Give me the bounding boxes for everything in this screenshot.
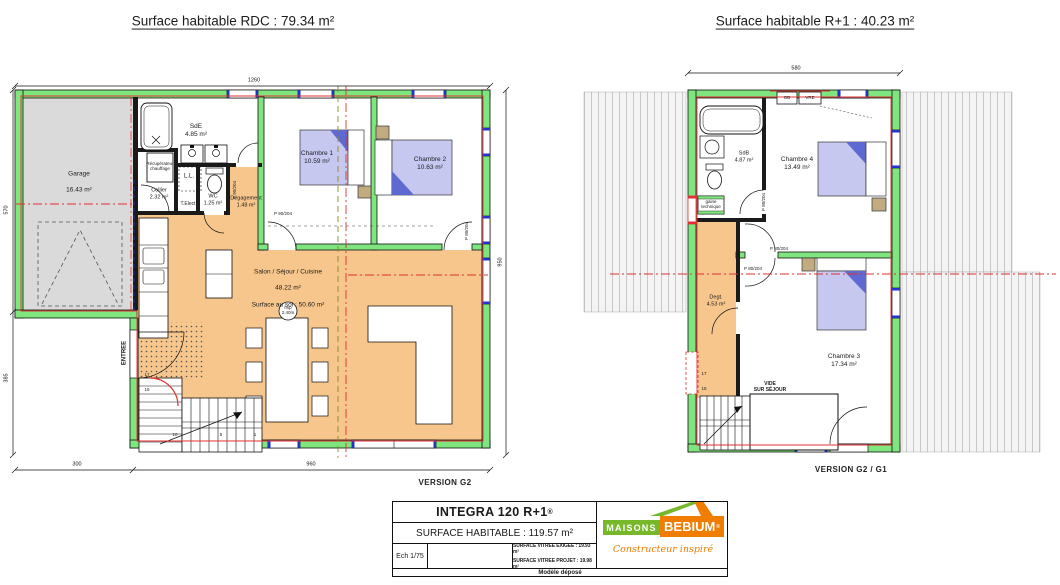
heat-recovery-label: Récupérateur chauffage [146, 162, 173, 172]
door-tag-p90-2: P 90/204 [232, 181, 238, 199]
r1-furniture [802, 142, 886, 330]
technical-duct-label: gaine technique [701, 200, 721, 210]
rdc-title: Surface habitable RDC : 79.34 m² [132, 14, 335, 31]
wc-tank [206, 168, 223, 174]
model-text: INTEGRA 120 R+1 [436, 505, 547, 519]
dim-top-rdc: 1260 [248, 78, 260, 85]
room-label-chambre1: Chambre 110.59 m² [301, 142, 333, 175]
door-tag-r1-c: P 80/204 [761, 193, 767, 211]
r1-stair-step-17: 17 [701, 371, 706, 377]
room-label-chambre2: Chambre 210.63 m² [414, 148, 446, 181]
vide-sur-sejour-opening [750, 394, 838, 450]
door-tag-p80: P 80/204 [464, 222, 470, 240]
logo-bebium: BEBIUM® [660, 516, 724, 537]
dim-top-r1: 580 [791, 66, 800, 73]
room-label-chambre4: Chambre 413.49 m² [781, 148, 813, 181]
title-block-left: INTEGRA 120 R+1® SURFACE HABITABLE : 119… [393, 502, 597, 568]
vre-label: VRE [805, 95, 814, 101]
room-label-sde: SdE4.85 m² [185, 115, 207, 148]
floorplan-sheet: Surface habitable RDC : 79.34 m² Surface… [0, 0, 1060, 585]
room-label-garage: Garage 16.43 m² [66, 163, 92, 204]
scale-cell: Ech 1/75 [393, 544, 428, 568]
washing-machine-label: L.L. [184, 173, 194, 181]
door-tag-r1-b: P 80/204 [744, 266, 762, 272]
logo-mark: ® [716, 524, 720, 530]
room-label-wc: WC1.25 m² [204, 186, 223, 214]
logo-bebium-text: BEBIUM [664, 519, 715, 534]
dim-left-top-rdc: 570 [4, 205, 11, 214]
glazing-required: SURFACE VITREE EXIGEE : 19.93 m² [513, 543, 596, 555]
registered-model-note: Modèle déposé [393, 568, 727, 577]
elec-board-label: T.Elect [180, 201, 195, 207]
title-block: INTEGRA 120 R+1® SURFACE HABITABLE : 119… [392, 501, 728, 577]
room-label-cellier: Cellier2.32 m² [150, 180, 169, 208]
registered-mark: ® [547, 509, 552, 516]
bathtub [700, 106, 763, 134]
stair-step-10: 10 [172, 432, 177, 438]
entrance-label: ENTREE [121, 341, 129, 365]
r1-plan [584, 70, 1056, 452]
stair-step-17: 17 [144, 372, 149, 378]
kitchen-counter [139, 218, 168, 338]
wc-bowl-r1 [708, 171, 722, 189]
brand-logo: MAISONS BEBIUM® Constructeur inspiré [597, 502, 729, 568]
logo-tagline: Constructeur inspiré [597, 544, 729, 555]
room-area: 16.43 m² [66, 187, 92, 195]
model-name: INTEGRA 120 R+1® [393, 502, 596, 522]
garage-floor [22, 97, 137, 310]
stair-step-15: 15 [144, 387, 149, 393]
surface-habitable: SURFACE HABITABLE : 119.57 m² [393, 522, 596, 543]
room-label-chambre3: Chambre 317.34 m² [828, 345, 860, 378]
door-tag-p90: P 90/204 [274, 211, 292, 217]
r1-stair-step-15: 15 [701, 386, 706, 392]
stair-step-5: 5 [220, 432, 223, 438]
r1-stairs [700, 394, 838, 450]
wc-tank-r1 [706, 164, 723, 170]
rdc-version: VERSION G2 [419, 478, 472, 488]
dining-table [266, 318, 308, 422]
r1-title: Surface habitable R+1 : 40.23 m² [716, 14, 915, 31]
room-label-degt: Degt.4.53 m² [707, 287, 726, 315]
empty-cell [428, 544, 513, 568]
room-label-sdb: SdB4.87 m² [735, 143, 754, 171]
dim-bottom-left-rdc: 300 [72, 462, 81, 469]
dim-left-bottom-rdc: 385 [4, 373, 11, 382]
glazing-cell: SURFACE VITREE EXIGEE : 19.93 m² SURFACE… [513, 544, 596, 568]
stair-step-1: 1 [254, 432, 257, 438]
door-tag-r1-a: P 80/204 [770, 246, 788, 252]
ceiling-height-badge: hsp 2.40m [282, 306, 295, 316]
ob-label: OB [784, 95, 791, 101]
shower [141, 103, 172, 150]
logo-maisons: MAISONS [603, 520, 660, 535]
vide-sur-sejour-label: VIDE SUR SÉJOUR [754, 381, 787, 393]
dim-right-rdc: 950 [498, 257, 505, 266]
room-name: Garage [66, 171, 92, 179]
dim-bottom-right-rdc: 960 [306, 462, 315, 469]
r1-version: VERSION G2 / G1 [815, 465, 887, 475]
floorplan-drawing [0, 0, 1060, 585]
